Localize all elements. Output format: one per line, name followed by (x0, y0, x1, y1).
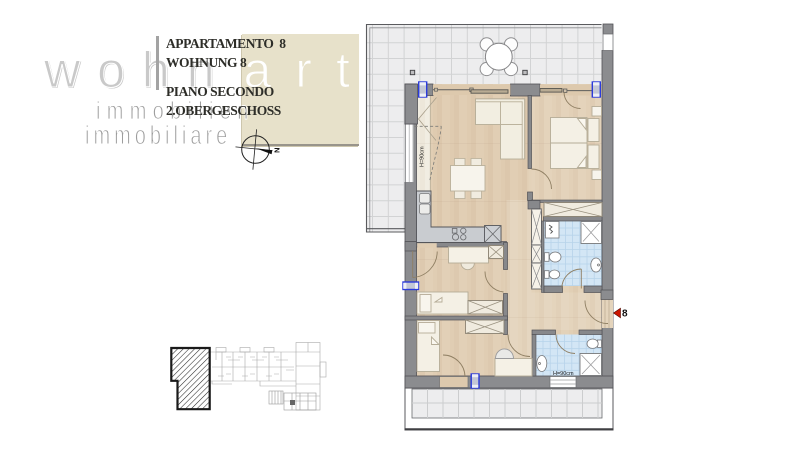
svg-text:N: N (273, 148, 282, 153)
svg-text:H=90cm: H=90cm (553, 371, 574, 377)
svg-text:H=90cm: H=90cm (420, 146, 426, 167)
svg-text:8: 8 (622, 309, 628, 320)
